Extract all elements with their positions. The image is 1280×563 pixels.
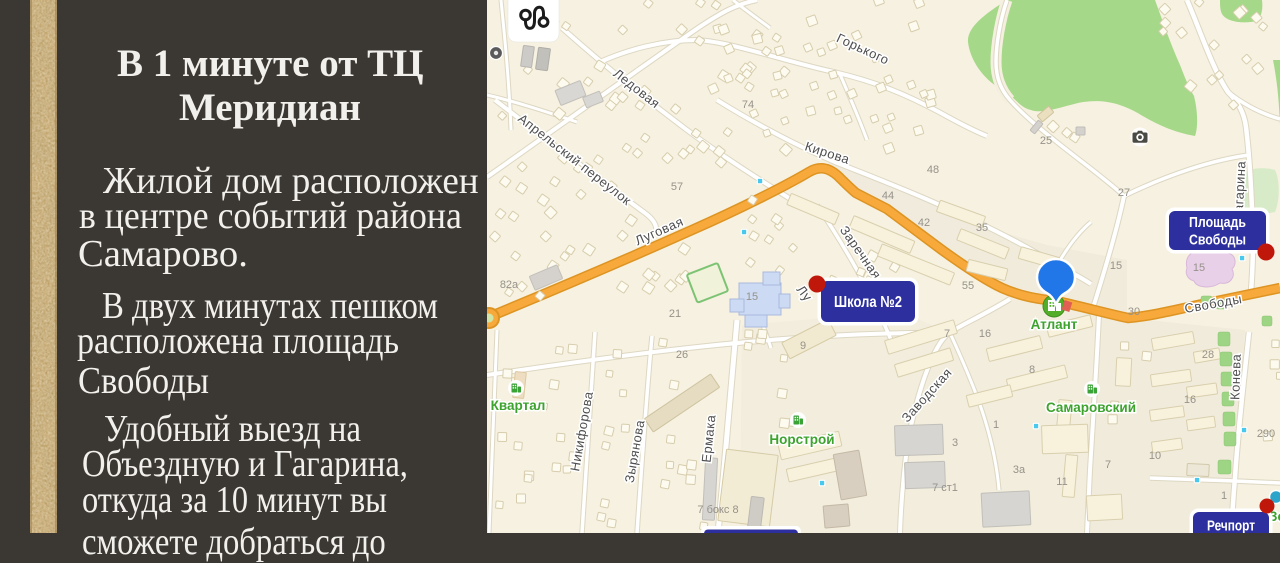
svg-text:21: 21	[669, 308, 681, 320]
svg-text:3: 3	[952, 437, 958, 449]
svg-text:Школа №2: Школа №2	[834, 294, 902, 311]
svg-text:82а: 82а	[500, 279, 519, 291]
svg-text:15: 15	[746, 291, 758, 303]
svg-text:3а: 3а	[1013, 464, 1026, 476]
svg-text:57: 57	[671, 181, 683, 193]
svg-text:Свободы: Свободы	[1189, 232, 1246, 248]
svg-text:10: 10	[1149, 450, 1161, 462]
svg-text:7 ст1: 7 ст1	[932, 482, 958, 494]
svg-text:Норстрой: Норстрой	[769, 432, 834, 447]
svg-text:7 бокс 8: 7 бокс 8	[697, 504, 738, 516]
svg-text:Конева: Конева	[1227, 353, 1244, 400]
svg-text:16: 16	[979, 328, 991, 340]
svg-text:15: 15	[1193, 262, 1205, 274]
svg-text:1: 1	[1221, 490, 1227, 502]
svg-text:25: 25	[1040, 135, 1052, 147]
svg-text:7: 7	[944, 328, 950, 340]
svg-text:11: 11	[1056, 476, 1067, 488]
svg-text:Самаровский: Самаровский	[1046, 400, 1136, 415]
svg-text:Речпорт: Речпорт	[1207, 517, 1255, 533]
svg-text:Площадь: Площадь	[1189, 215, 1246, 231]
svg-text:55: 55	[962, 280, 974, 292]
svg-text:44: 44	[882, 190, 894, 202]
svg-text:27: 27	[1118, 187, 1130, 199]
svg-text:28: 28	[1202, 349, 1214, 361]
svg-text:42: 42	[918, 217, 930, 229]
svg-text:7: 7	[1105, 459, 1111, 471]
svg-text:9: 9	[800, 340, 806, 352]
svg-text:290: 290	[1257, 428, 1275, 440]
svg-text:Атлант: Атлант	[1031, 317, 1078, 332]
svg-text:30: 30	[1128, 306, 1140, 318]
svg-text:15: 15	[1110, 260, 1122, 272]
svg-text:74: 74	[742, 99, 754, 111]
svg-text:48: 48	[927, 164, 939, 176]
svg-text:Квартал: Квартал	[491, 398, 546, 413]
svg-text:8: 8	[1029, 364, 1035, 376]
svg-text:1: 1	[993, 419, 999, 431]
svg-text:16: 16	[1184, 394, 1196, 406]
svg-text:26: 26	[676, 349, 688, 361]
svg-text:35: 35	[976, 222, 988, 234]
